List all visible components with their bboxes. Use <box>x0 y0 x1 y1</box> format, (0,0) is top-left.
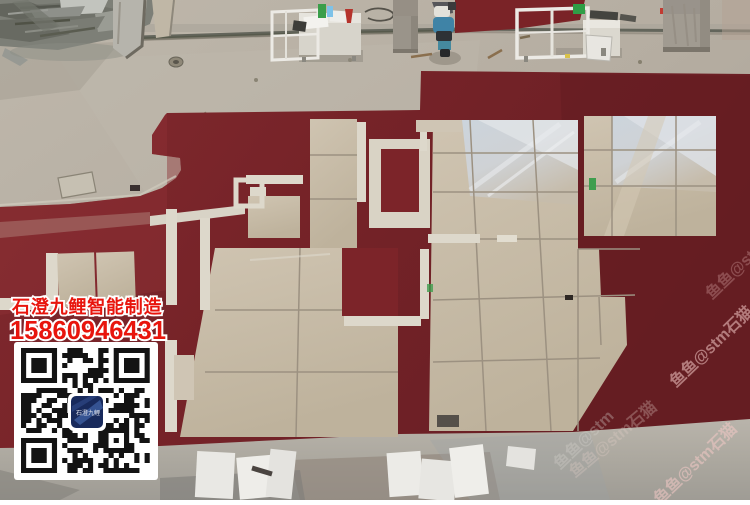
svg-text:15860946431: 15860946431 <box>10 317 166 345</box>
svg-text:石澄九鲤智能制造: 石澄九鲤智能制造 <box>11 296 162 317</box>
svg-text:石澄九鲤: 石澄九鲤 <box>76 409 100 417</box>
